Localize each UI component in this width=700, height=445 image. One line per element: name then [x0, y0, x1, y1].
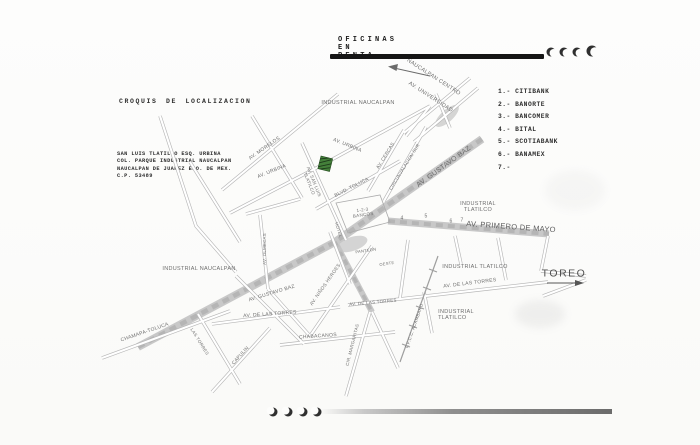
binder-rings-top-icon	[547, 46, 600, 58]
street-map	[0, 0, 700, 445]
toreo-arrow-icon	[547, 280, 584, 286]
naucalpan-centro-arrow-icon	[388, 64, 430, 76]
scanned-location-map-page: NAUCALPAN CENTRO AV. UNIVERSIDAD INDUSTR…	[0, 0, 700, 445]
railroad-line	[400, 256, 438, 362]
binder-rings-bottom-icon	[267, 407, 322, 417]
header-rule	[330, 54, 544, 59]
minor-streets	[102, 78, 586, 396]
main-roads	[138, 102, 549, 347]
site-marker-icon	[318, 156, 333, 172]
